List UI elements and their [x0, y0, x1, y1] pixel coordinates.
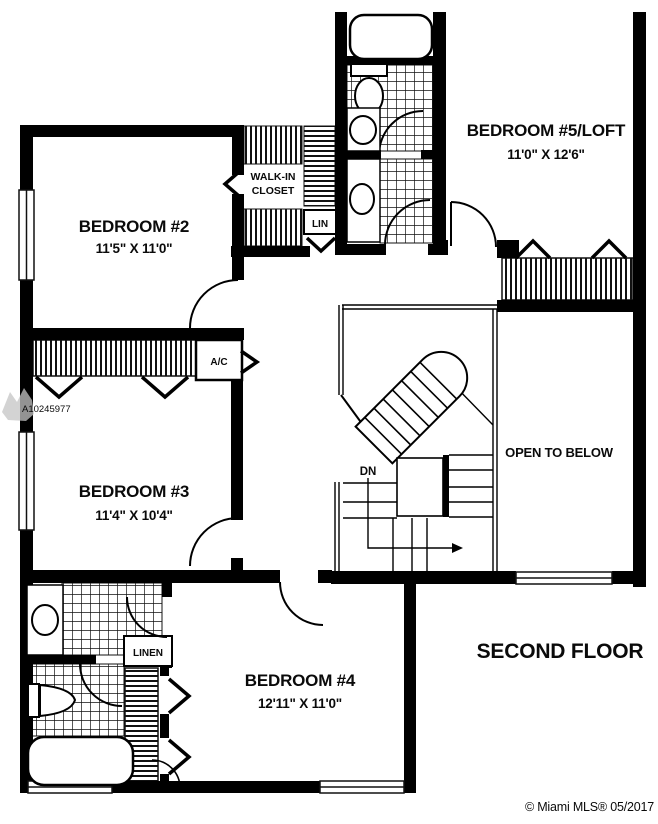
floor-title: SECOND FLOOR — [477, 640, 644, 663]
walkin-closet-shelf-top — [244, 126, 302, 164]
window — [516, 572, 612, 584]
mls-credit-watermark: © Miami MLS® 05/2017 — [525, 800, 654, 814]
floor-plan-page: BEDROOM #2 11'5" X 11'0" BEDROOM #5/LOFT… — [0, 0, 658, 824]
bedroom5-label: BEDROOM #5/LOFT — [467, 121, 626, 140]
bedroom2-label: BEDROOM #2 — [79, 217, 189, 236]
bedroom3-closet-shelf — [33, 340, 196, 376]
stair-landing — [397, 458, 443, 516]
bedroom4-dims: 12'11" X 11'0" — [258, 696, 342, 711]
listing-id-watermark: A10245977 — [22, 404, 71, 415]
open-to-below-label: OPEN TO BELOW — [505, 445, 614, 460]
sink — [350, 184, 374, 214]
window — [19, 190, 34, 280]
walkin-closet-shelf-bottom — [244, 209, 302, 246]
bedroom2-dims: 11'5" X 11'0" — [96, 241, 173, 256]
toilet-tank — [351, 64, 387, 76]
bedroom5-dims: 11'0" X 12'6" — [507, 147, 584, 162]
lin-closet-shelf — [304, 126, 335, 206]
sink — [32, 605, 58, 635]
toilet-tank — [28, 684, 39, 717]
bedroom5-closet-shelf — [502, 258, 633, 300]
bathtub — [28, 737, 133, 785]
linen-closet-label: LINEN — [133, 648, 163, 659]
floor-plan-svg: BEDROOM #2 11'5" X 11'0" BEDROOM #5/LOFT… — [0, 0, 658, 824]
bedroom3-dims: 11'4" X 10'4" — [95, 508, 172, 523]
ac-closet-label: A/C — [210, 357, 227, 368]
dn-label: DN — [360, 466, 377, 478]
sink — [350, 116, 376, 144]
lin-closet-label: LIN — [312, 219, 328, 230]
bedroom3-label: BEDROOM #3 — [79, 482, 189, 501]
window — [320, 781, 404, 793]
bathtub — [350, 15, 432, 59]
walkin-closet-label-line2: CLOSET — [252, 185, 295, 197]
window — [19, 432, 34, 530]
walkin-closet-label-line1: WALK-IN — [251, 171, 296, 183]
bedroom4-label: BEDROOM #4 — [245, 671, 356, 690]
